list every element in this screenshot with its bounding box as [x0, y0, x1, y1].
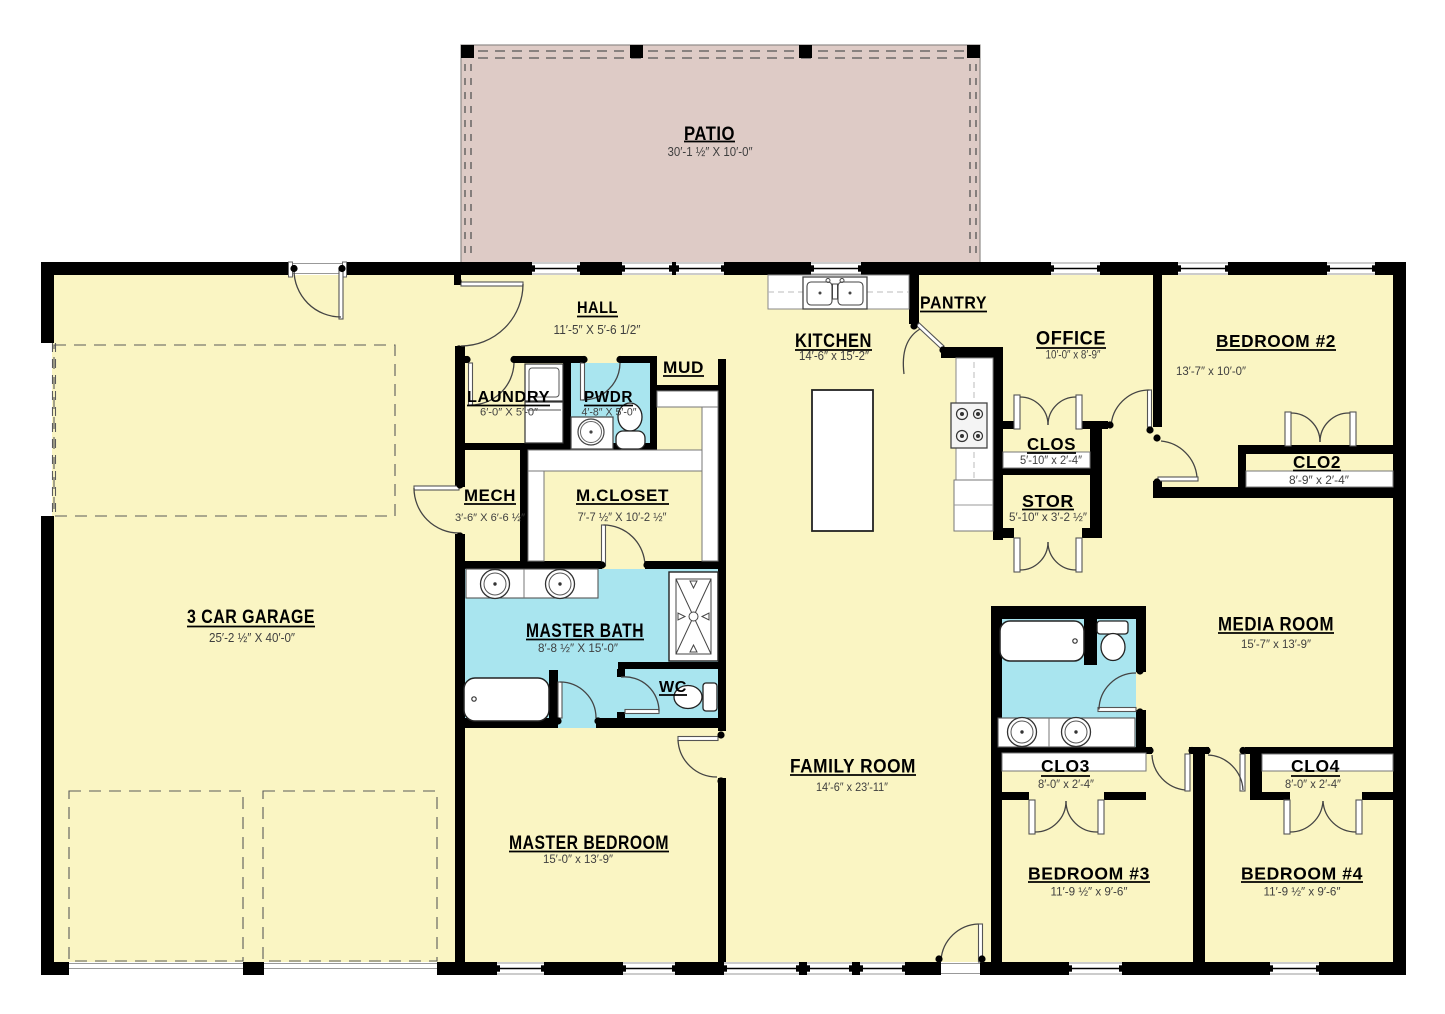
svg-text:MECH: MECH — [464, 487, 516, 505]
svg-text:WC: WC — [659, 679, 687, 696]
svg-text:CLO2: CLO2 — [1293, 452, 1341, 472]
svg-text:CLO4: CLO4 — [1291, 756, 1340, 776]
svg-text:6′-0″ X 5′-0″: 6′-0″ X 5′-0″ — [480, 407, 538, 419]
svg-text:8′-9″ x 2′-4″: 8′-9″ x 2′-4″ — [1289, 475, 1349, 487]
svg-text:8′-0″ x 2′-4″: 8′-0″ x 2′-4″ — [1285, 779, 1341, 791]
svg-text:CLO3: CLO3 — [1041, 756, 1090, 776]
svg-text:14′-6″ x 15′-2″: 14′-6″ x 15′-2″ — [799, 349, 870, 363]
svg-text:4′-8″ X 5′-0″: 4′-8″ X 5′-0″ — [582, 407, 637, 419]
svg-text:5′-10″ x 2′-4″: 5′-10″ x 2′-4″ — [1020, 455, 1082, 467]
svg-text:3′-6″ X 6′-6 ½″: 3′-6″ X 6′-6 ½″ — [455, 512, 525, 524]
svg-text:30′-1 ½″ X 10′-0″: 30′-1 ½″ X 10′-0″ — [668, 144, 753, 159]
svg-text:5′-10″ x 3′-2 ½″: 5′-10″ x 3′-2 ½″ — [1009, 512, 1087, 524]
svg-text:CLOS: CLOS — [1027, 434, 1076, 454]
svg-text:13′-7″ x 10′-0″: 13′-7″ x 10′-0″ — [1176, 364, 1247, 378]
svg-text:14′-6″ x 23′-11″: 14′-6″ x 23′-11″ — [816, 780, 889, 794]
svg-text:10′-0″ x 8′-9″: 10′-0″ x 8′-9″ — [1046, 348, 1102, 362]
svg-text:25′-2 ½″ X 40′-0″: 25′-2 ½″ X 40′-0″ — [209, 630, 295, 645]
svg-text:BEDROOM #3: BEDROOM #3 — [1028, 864, 1150, 884]
svg-text:BEDROOM #4: BEDROOM #4 — [1241, 864, 1363, 884]
svg-text:PANTRY: PANTRY — [920, 293, 987, 313]
svg-text:11′-5″ X 5′-6 1/2″: 11′-5″ X 5′-6 1/2″ — [554, 323, 642, 337]
svg-text:11′-9 ½″ x 9′-6″: 11′-9 ½″ x 9′-6″ — [1051, 885, 1129, 899]
svg-text:11′-9 ½″ x 9′-6″: 11′-9 ½″ x 9′-6″ — [1264, 885, 1342, 899]
svg-text:3 CAR GARAGE: 3 CAR GARAGE — [187, 606, 315, 628]
svg-text:MUD: MUD — [663, 358, 704, 377]
svg-text:M.CLOSET: M.CLOSET — [576, 487, 669, 505]
svg-text:PWDR: PWDR — [584, 389, 633, 406]
svg-text:HALL: HALL — [577, 298, 618, 317]
svg-text:STOR: STOR — [1022, 491, 1074, 511]
svg-text:8′-8 ½″ X 15′-0″: 8′-8 ½″ X 15′-0″ — [538, 641, 619, 655]
svg-text:15′-0″ x 13′-9″: 15′-0″ x 13′-9″ — [543, 852, 614, 866]
svg-text:OFFICE: OFFICE — [1036, 329, 1106, 350]
svg-text:BEDROOM #2: BEDROOM #2 — [1216, 331, 1336, 351]
svg-text:8′-0″ x 2′-4″: 8′-0″ x 2′-4″ — [1038, 779, 1094, 791]
svg-text:7′-7 ½″ X 10′-2 ½″: 7′-7 ½″ X 10′-2 ½″ — [578, 512, 667, 524]
svg-text:15′-7″ x 13′-9″: 15′-7″ x 13′-9″ — [1241, 637, 1312, 651]
svg-text:LAUNDRY: LAUNDRY — [467, 389, 550, 406]
